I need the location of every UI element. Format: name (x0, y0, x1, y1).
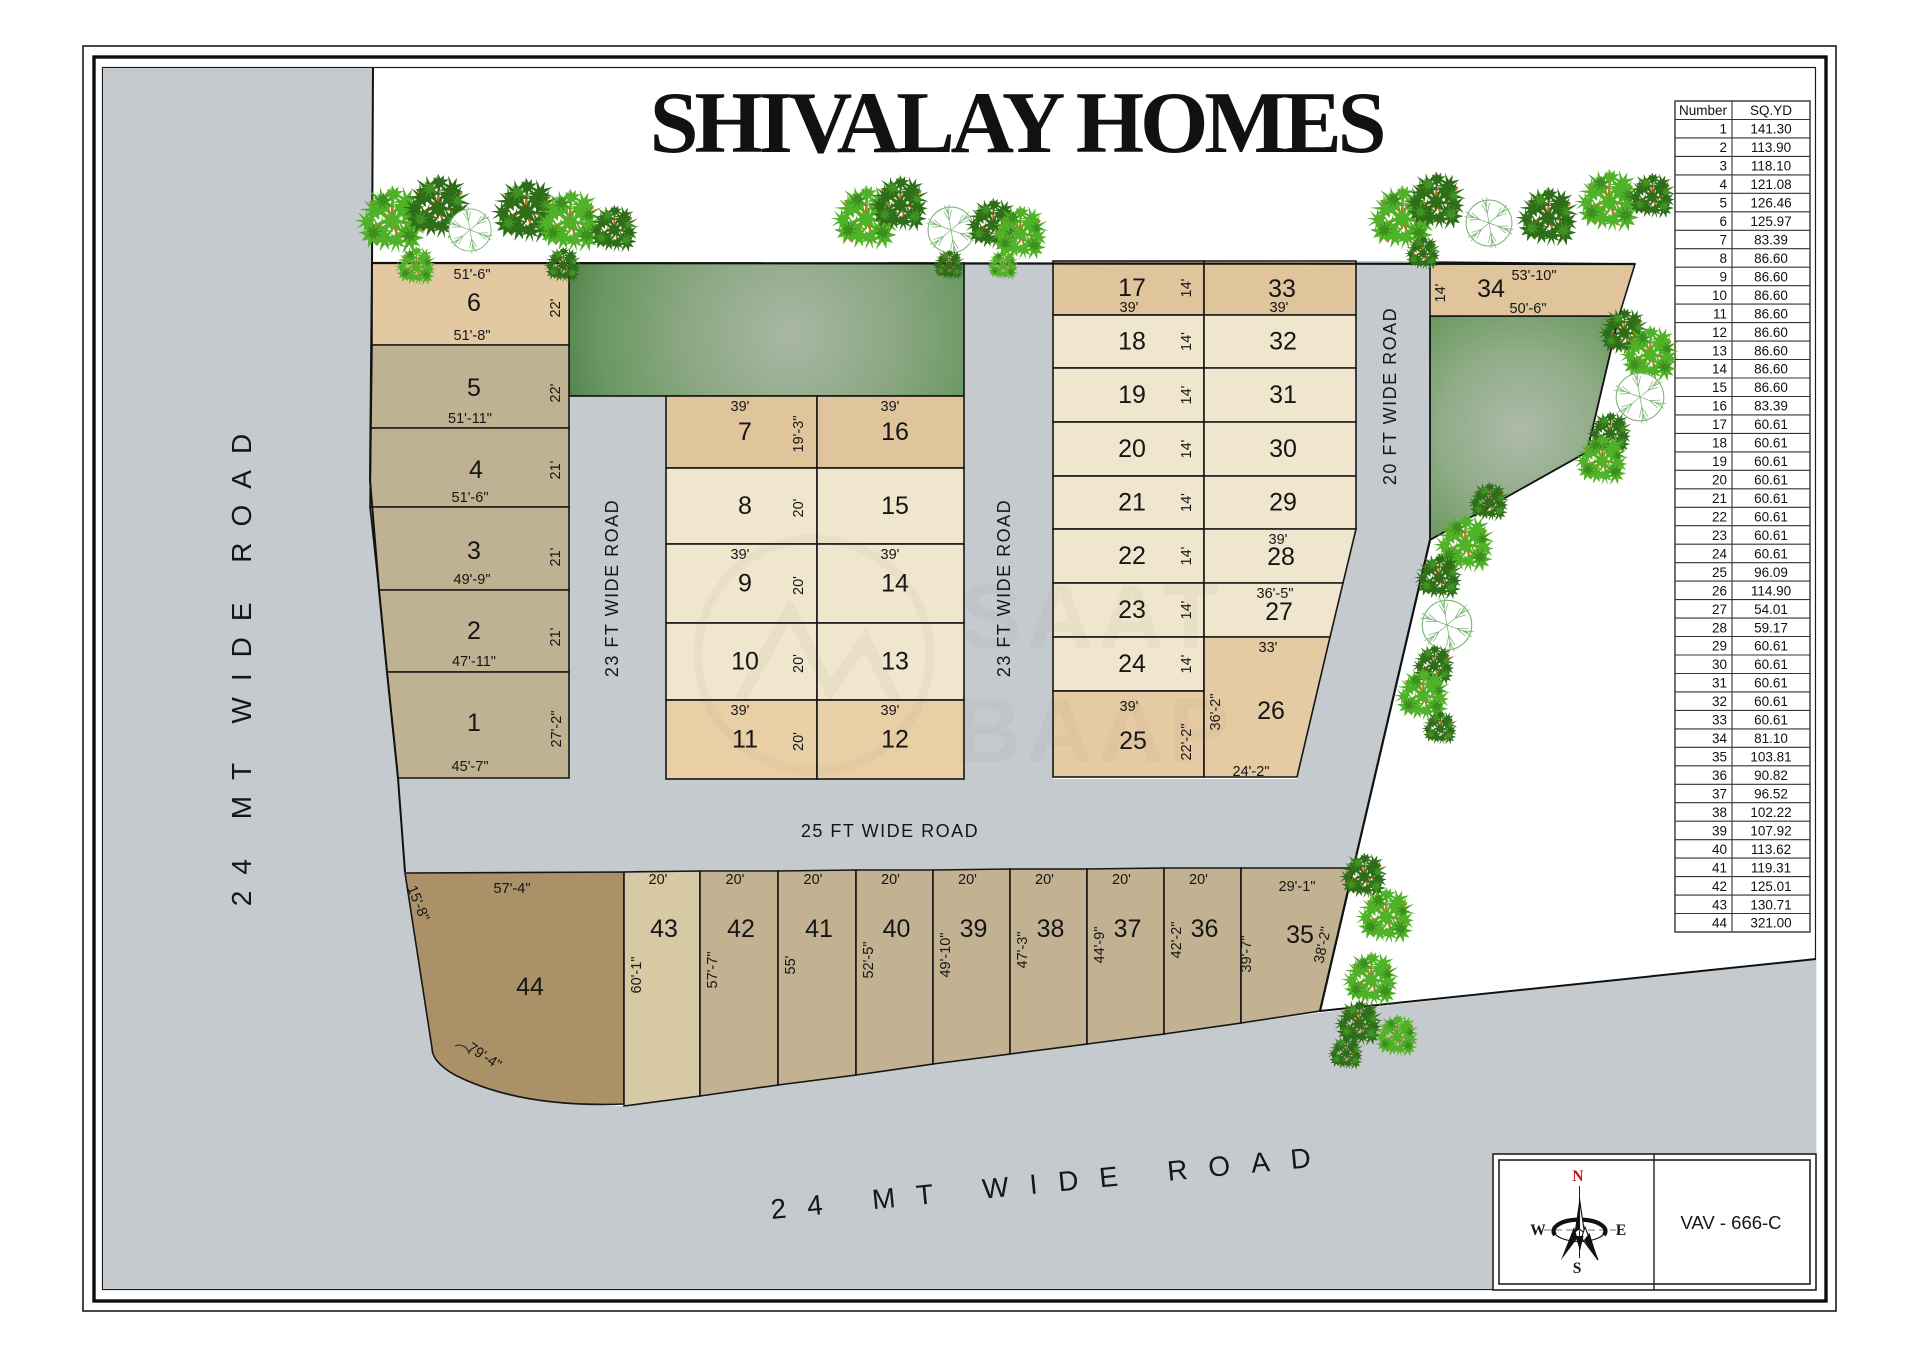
svg-text:SHIVALAY HOMES: SHIVALAY HOMES (650, 75, 1384, 172)
svg-text:31: 31 (1712, 676, 1727, 691)
svg-text:32: 32 (1269, 328, 1297, 356)
svg-text:118.10: 118.10 (1751, 159, 1791, 174)
svg-text:19'-3": 19'-3" (791, 416, 807, 453)
svg-text:60'-1": 60'-1" (629, 957, 645, 994)
svg-text:38: 38 (1712, 805, 1727, 820)
svg-text:33: 33 (1712, 713, 1727, 728)
svg-text:59.17: 59.17 (1754, 620, 1788, 635)
svg-text:86.60: 86.60 (1754, 306, 1788, 321)
svg-text:28: 28 (1712, 620, 1727, 635)
svg-text:96.52: 96.52 (1754, 787, 1788, 802)
svg-text:39'-7": 39'-7" (1239, 936, 1255, 973)
svg-text:12: 12 (1712, 325, 1727, 340)
svg-text:39': 39' (731, 399, 750, 415)
svg-text:20': 20' (1035, 872, 1054, 888)
svg-text:51'-11": 51'-11" (448, 411, 492, 427)
svg-text:VAV - 666-C: VAV - 666-C (1680, 1212, 1781, 1233)
svg-text:20': 20' (791, 576, 807, 595)
svg-text:6: 6 (467, 289, 481, 317)
svg-text:29: 29 (1712, 639, 1727, 654)
svg-text:14': 14' (1179, 332, 1195, 351)
svg-text:4: 4 (469, 456, 483, 484)
svg-text:20': 20' (958, 872, 977, 888)
svg-text:N: N (1572, 1168, 1583, 1185)
svg-text:39': 39' (1120, 300, 1139, 316)
svg-text:32: 32 (1712, 694, 1727, 709)
svg-text:54.01: 54.01 (1754, 602, 1788, 617)
svg-text:7: 7 (1719, 233, 1727, 248)
svg-text:39': 39' (731, 703, 750, 719)
svg-text:57'-4": 57'-4" (494, 881, 531, 897)
svg-text:43: 43 (650, 915, 678, 943)
svg-text:23 FT WIDE ROAD: 23 FT WIDE ROAD (994, 499, 1014, 677)
svg-text:20: 20 (1118, 435, 1146, 463)
svg-text:6: 6 (1719, 214, 1727, 229)
svg-text:3: 3 (467, 537, 481, 565)
svg-text:41: 41 (805, 915, 833, 943)
svg-text:83.39: 83.39 (1754, 399, 1788, 414)
svg-text:BAAP: BAAP (955, 680, 1236, 782)
svg-text:20': 20' (1189, 872, 1208, 888)
svg-text:20': 20' (791, 732, 807, 751)
svg-text:55': 55' (783, 955, 799, 974)
svg-text:113.62: 113.62 (1751, 842, 1791, 857)
svg-text:27: 27 (1712, 602, 1727, 617)
svg-text:47'-3": 47'-3" (1015, 932, 1031, 969)
svg-text:107.92: 107.92 (1750, 823, 1791, 838)
svg-text:11: 11 (1713, 306, 1727, 321)
svg-text:86.60: 86.60 (1754, 251, 1788, 266)
svg-text:25 FT WIDE ROAD: 25 FT WIDE ROAD (801, 821, 979, 841)
svg-text:113.90: 113.90 (1751, 140, 1791, 155)
svg-text:27'-2": 27'-2" (549, 711, 565, 748)
svg-text:26: 26 (1712, 583, 1727, 598)
svg-text:321.00: 321.00 (1750, 916, 1791, 931)
svg-text:60.61: 60.61 (1754, 694, 1788, 709)
svg-text:4: 4 (1719, 177, 1727, 192)
svg-text:7: 7 (738, 418, 752, 446)
svg-text:21': 21' (548, 627, 564, 646)
svg-text:60.61: 60.61 (1754, 510, 1788, 525)
svg-text:20': 20' (649, 872, 668, 888)
svg-text:86.60: 86.60 (1754, 343, 1788, 358)
svg-text:14': 14' (1179, 385, 1195, 404)
svg-text:83.39: 83.39 (1754, 233, 1788, 248)
svg-text:23: 23 (1712, 528, 1727, 543)
svg-text:29: 29 (1269, 489, 1297, 517)
svg-text:52'-5": 52'-5" (861, 942, 877, 979)
svg-text:8: 8 (738, 492, 752, 520)
svg-text:34: 34 (1712, 731, 1728, 746)
svg-text:24 MT WIDE ROAD: 24 MT WIDE ROAD (226, 418, 257, 906)
svg-text:9: 9 (738, 570, 752, 598)
svg-text:42: 42 (1712, 879, 1727, 894)
svg-text:45'-7": 45'-7" (452, 759, 489, 775)
svg-text:3: 3 (1719, 159, 1727, 174)
svg-text:130.71: 130.71 (1750, 897, 1791, 912)
svg-text:9: 9 (1719, 269, 1727, 284)
svg-text:114.90: 114.90 (1751, 583, 1791, 598)
svg-text:14': 14' (1179, 493, 1195, 512)
svg-text:30: 30 (1712, 657, 1727, 672)
svg-text:20: 20 (1712, 473, 1727, 488)
svg-text:17: 17 (1118, 274, 1146, 302)
svg-text:5: 5 (1719, 196, 1727, 211)
svg-text:60.61: 60.61 (1754, 417, 1788, 432)
svg-text:29'-1": 29'-1" (1279, 879, 1316, 895)
svg-text:27: 27 (1265, 598, 1293, 626)
svg-text:86.60: 86.60 (1754, 288, 1788, 303)
svg-text:39: 39 (1712, 823, 1727, 838)
svg-text:14': 14' (1179, 278, 1195, 297)
svg-text:14: 14 (1712, 362, 1728, 377)
svg-text:86.60: 86.60 (1754, 269, 1788, 284)
svg-text:51'-6": 51'-6" (452, 490, 489, 506)
svg-text:49'-10": 49'-10" (938, 932, 954, 977)
svg-text:14': 14' (1179, 439, 1195, 458)
svg-text:42: 42 (727, 915, 755, 943)
svg-text:21: 21 (1712, 491, 1727, 506)
svg-text:20': 20' (881, 872, 900, 888)
svg-text:86.60: 86.60 (1754, 362, 1788, 377)
svg-text:125.01: 125.01 (1750, 879, 1791, 894)
svg-text:60.61: 60.61 (1754, 676, 1788, 691)
svg-text:28: 28 (1267, 543, 1295, 571)
svg-text:19: 19 (1712, 454, 1727, 469)
svg-text:33': 33' (1259, 640, 1278, 656)
svg-text:24'-2": 24'-2" (1233, 764, 1270, 780)
svg-text:60.61: 60.61 (1754, 473, 1788, 488)
svg-text:W: W (1530, 1222, 1546, 1239)
svg-text:35: 35 (1286, 921, 1314, 949)
svg-text:39: 39 (960, 915, 988, 943)
svg-text:125.97: 125.97 (1750, 214, 1791, 229)
svg-text:60.61: 60.61 (1754, 657, 1788, 672)
svg-text:24: 24 (1712, 546, 1728, 561)
svg-text:22: 22 (1712, 510, 1727, 525)
svg-text:60.61: 60.61 (1754, 436, 1788, 451)
svg-text:60.61: 60.61 (1754, 491, 1788, 506)
svg-text:E: E (1616, 1222, 1626, 1239)
svg-text:102.22: 102.22 (1750, 805, 1791, 820)
svg-text:5: 5 (467, 374, 481, 402)
svg-text:23 FT WIDE ROAD: 23 FT WIDE ROAD (602, 499, 622, 677)
svg-text:38: 38 (1037, 915, 1065, 943)
svg-text:121.08: 121.08 (1750, 177, 1791, 192)
svg-text:47'-11": 47'-11" (452, 654, 496, 670)
svg-text:20': 20' (804, 872, 823, 888)
svg-text:42'-2": 42'-2" (1169, 922, 1185, 959)
svg-text:36: 36 (1712, 768, 1727, 783)
svg-text:8: 8 (1719, 251, 1727, 266)
svg-text:60.61: 60.61 (1754, 528, 1788, 543)
svg-text:51'-8": 51'-8" (454, 328, 491, 344)
svg-text:20': 20' (791, 498, 807, 517)
svg-text:96.09: 96.09 (1754, 565, 1788, 580)
svg-text:SQ.YD: SQ.YD (1750, 103, 1792, 118)
svg-text:90.82: 90.82 (1754, 768, 1788, 783)
svg-text:21': 21' (548, 547, 564, 566)
svg-text:57'-7": 57'-7" (705, 952, 721, 989)
svg-text:44: 44 (1712, 916, 1728, 931)
svg-text:36: 36 (1191, 915, 1219, 943)
svg-text:31: 31 (1269, 381, 1297, 409)
svg-text:2: 2 (1719, 140, 1727, 155)
svg-text:25: 25 (1712, 565, 1727, 580)
svg-text:44: 44 (516, 973, 544, 1001)
svg-text:22': 22' (548, 298, 564, 317)
svg-text:14': 14' (1433, 283, 1449, 302)
svg-text:14': 14' (1179, 546, 1195, 565)
svg-text:103.81: 103.81 (1750, 750, 1791, 765)
svg-text:22': 22' (548, 383, 564, 402)
svg-text:37: 37 (1114, 915, 1142, 943)
svg-text:1: 1 (467, 709, 481, 737)
svg-text:41: 41 (1712, 860, 1727, 875)
svg-text:60.61: 60.61 (1754, 546, 1788, 561)
svg-text:51'-6": 51'-6" (454, 267, 491, 283)
svg-text:81.10: 81.10 (1754, 731, 1788, 746)
svg-text:2: 2 (467, 617, 481, 645)
svg-text:33: 33 (1268, 275, 1296, 303)
svg-text:20 FT WIDE ROAD: 20 FT WIDE ROAD (1380, 307, 1400, 485)
svg-text:40: 40 (1712, 842, 1727, 857)
svg-text:50'-6": 50'-6" (1510, 301, 1547, 317)
svg-text:86.60: 86.60 (1754, 325, 1788, 340)
svg-text:60.61: 60.61 (1754, 454, 1788, 469)
svg-text:15: 15 (881, 492, 909, 520)
svg-text:20': 20' (791, 654, 807, 673)
svg-text:40: 40 (883, 915, 911, 943)
svg-text:17: 17 (1712, 417, 1727, 432)
svg-text:44'-9": 44'-9" (1092, 927, 1108, 964)
svg-text:60.61: 60.61 (1754, 713, 1788, 728)
svg-text:141.30: 141.30 (1750, 122, 1791, 137)
svg-text:21: 21 (1118, 489, 1146, 517)
svg-text:21': 21' (548, 460, 564, 479)
svg-text:39': 39' (881, 399, 900, 415)
svg-text:S: S (1573, 1260, 1582, 1277)
svg-text:86.60: 86.60 (1754, 380, 1788, 395)
svg-text:19: 19 (1118, 381, 1146, 409)
svg-text:15: 15 (1712, 380, 1727, 395)
svg-text:Number: Number (1679, 103, 1728, 118)
svg-text:39': 39' (1270, 300, 1289, 316)
svg-text:16: 16 (1712, 399, 1727, 414)
svg-text:53'-10": 53'-10" (1511, 268, 1556, 284)
svg-text:26: 26 (1257, 697, 1285, 725)
svg-text:18: 18 (1712, 436, 1727, 451)
svg-text:60.61: 60.61 (1754, 639, 1788, 654)
svg-text:35: 35 (1712, 750, 1727, 765)
svg-text:119.31: 119.31 (1751, 860, 1791, 875)
svg-text:10: 10 (1712, 288, 1727, 303)
svg-text:126.46: 126.46 (1750, 196, 1791, 211)
svg-text:37: 37 (1712, 787, 1727, 802)
svg-text:20': 20' (1112, 872, 1131, 888)
svg-text:39': 39' (881, 703, 900, 719)
svg-text:13: 13 (1712, 343, 1727, 358)
svg-text:49'-9": 49'-9" (454, 572, 491, 588)
svg-text:18: 18 (1118, 328, 1146, 356)
svg-text:16: 16 (881, 418, 909, 446)
svg-text:34: 34 (1477, 275, 1505, 303)
svg-text:1: 1 (1719, 122, 1727, 137)
svg-text:43: 43 (1712, 897, 1727, 912)
svg-text:30: 30 (1269, 435, 1297, 463)
svg-text:20': 20' (726, 872, 745, 888)
